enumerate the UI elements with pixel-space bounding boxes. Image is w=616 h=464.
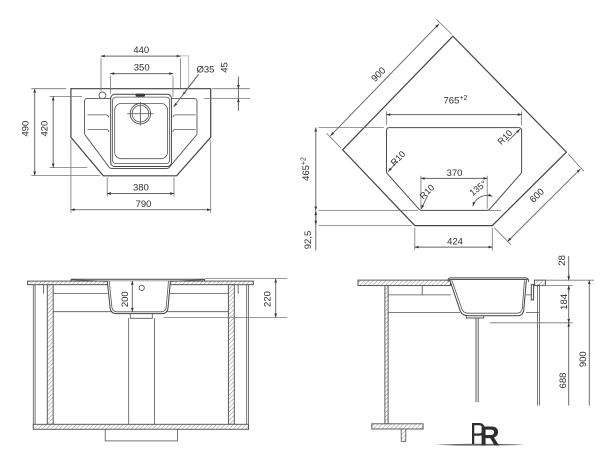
svg-text:28: 28 [557,255,568,266]
svg-text:790: 790 [136,199,152,210]
svg-text:440: 440 [133,45,149,56]
svg-text:R: R [480,420,500,451]
svg-text:420: 420 [40,121,51,137]
svg-text:490: 490 [21,121,32,137]
svg-text:184: 184 [559,294,570,310]
svg-text:200: 200 [120,291,131,307]
svg-text:45: 45 [220,62,231,73]
svg-text:350: 350 [134,62,150,73]
svg-text:424: 424 [447,236,463,247]
svg-text:688: 688 [558,373,569,389]
svg-text:900: 900 [578,351,589,367]
svg-text:370: 370 [447,168,463,179]
svg-text:380: 380 [133,182,149,193]
svg-text:92,5: 92,5 [303,231,314,250]
svg-text:220: 220 [263,291,274,307]
svg-text:Ø35: Ø35 [197,65,215,76]
